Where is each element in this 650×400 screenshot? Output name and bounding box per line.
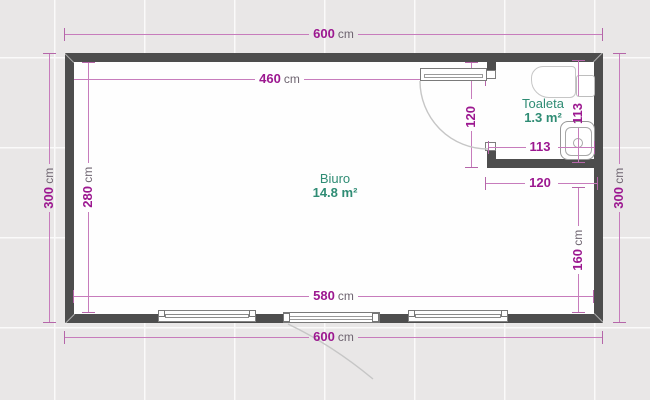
entry-door-leaf[interactable]	[283, 312, 380, 323]
toilet-door-leaf[interactable]	[420, 68, 487, 81]
dim-unit: cm	[612, 168, 626, 184]
dim-tick	[572, 312, 585, 313]
dim-value: 580	[313, 288, 335, 303]
dim-line	[578, 188, 579, 226]
dim-line	[74, 296, 309, 297]
dim-value: 160	[570, 249, 585, 271]
dim-tick	[602, 28, 603, 41]
dim-line	[486, 183, 525, 184]
dim-line	[619, 212, 620, 322]
dim-unit: cm	[338, 330, 354, 344]
dim-label: 600cm	[309, 330, 358, 344]
dim-line	[558, 183, 597, 184]
dim-tick	[593, 290, 594, 303]
dim-label: 280cm	[81, 163, 95, 212]
dim-value: 300	[611, 187, 626, 209]
floor-plan-canvas: 460cm 120	[0, 0, 650, 400]
dim-value: 280	[80, 186, 95, 208]
dim-line	[358, 296, 593, 297]
dim-tick	[602, 331, 603, 344]
room-label-biuro[interactable]: Biuro 14.8 m²	[280, 172, 390, 200]
dim-line	[49, 54, 50, 164]
dim-label: 600cm	[309, 27, 358, 41]
dim-unit: cm	[338, 289, 354, 303]
dim-left-height-300: 300cm	[41, 53, 57, 323]
door-panel-line	[287, 316, 376, 320]
dim-line	[358, 34, 602, 35]
dim-value: 300	[41, 187, 56, 209]
dim-label: 300cm	[42, 164, 56, 213]
window-cap	[249, 310, 256, 317]
dim-toilet-inner-113-h: 113	[488, 139, 595, 155]
dim-line	[65, 34, 309, 35]
dim-unit: cm	[571, 230, 585, 246]
dim-label: 160cm	[571, 226, 585, 275]
dim-bottom-width-600: 600cm	[64, 329, 603, 345]
dim-tick	[613, 322, 626, 323]
dim-unit: cm	[338, 27, 354, 41]
entry-door-cap	[372, 313, 379, 322]
room-area: 14.8 m²	[280, 186, 390, 200]
window-left[interactable]	[158, 310, 256, 322]
dim-tick	[43, 322, 56, 323]
dim-bottom-inner-580: 580cm	[73, 288, 594, 304]
window-glass-line	[165, 314, 249, 318]
room-name: Biuro	[280, 172, 390, 186]
dim-tick	[594, 141, 595, 154]
dim-tick	[597, 177, 598, 190]
dim-line	[49, 212, 50, 322]
dim-label: 120	[525, 176, 558, 190]
dim-label: 113	[526, 140, 558, 154]
entry-door-hinge	[283, 313, 290, 322]
dim-line	[65, 337, 309, 338]
window-right[interactable]	[408, 310, 508, 322]
dim-value: 113	[530, 139, 551, 154]
room-area: 1.3 m²	[498, 111, 588, 125]
dim-line	[358, 337, 602, 338]
window-cap	[408, 310, 415, 317]
dim-unit: cm	[42, 168, 56, 184]
room-name: Toaleta	[498, 97, 588, 111]
dim-tick	[82, 312, 95, 313]
dim-line	[619, 54, 620, 164]
window-glass-line	[415, 314, 501, 318]
dim-value: 600	[313, 329, 335, 344]
dim-tick	[572, 162, 585, 163]
dim-value: 600	[313, 26, 335, 41]
room-label-toaleta[interactable]: Toaleta 1.3 m²	[498, 97, 588, 125]
window-cap	[501, 310, 508, 317]
dim-line	[578, 61, 579, 96]
window-cap	[158, 310, 165, 317]
dim-line	[489, 147, 526, 148]
dim-unit: cm	[81, 167, 95, 183]
dim-label: 300cm	[612, 164, 626, 213]
dim-inner-height-280: 280cm	[80, 62, 96, 313]
dim-label: 580cm	[309, 289, 358, 303]
dim-line	[558, 147, 595, 148]
toilet-door-arc	[420, 81, 488, 149]
dim-value: 120	[529, 175, 551, 190]
door-panel-line	[424, 74, 483, 78]
dim-line	[88, 63, 89, 163]
dim-right-height-300: 300cm	[611, 53, 627, 323]
dim-top-width-600: 600cm	[64, 26, 603, 42]
